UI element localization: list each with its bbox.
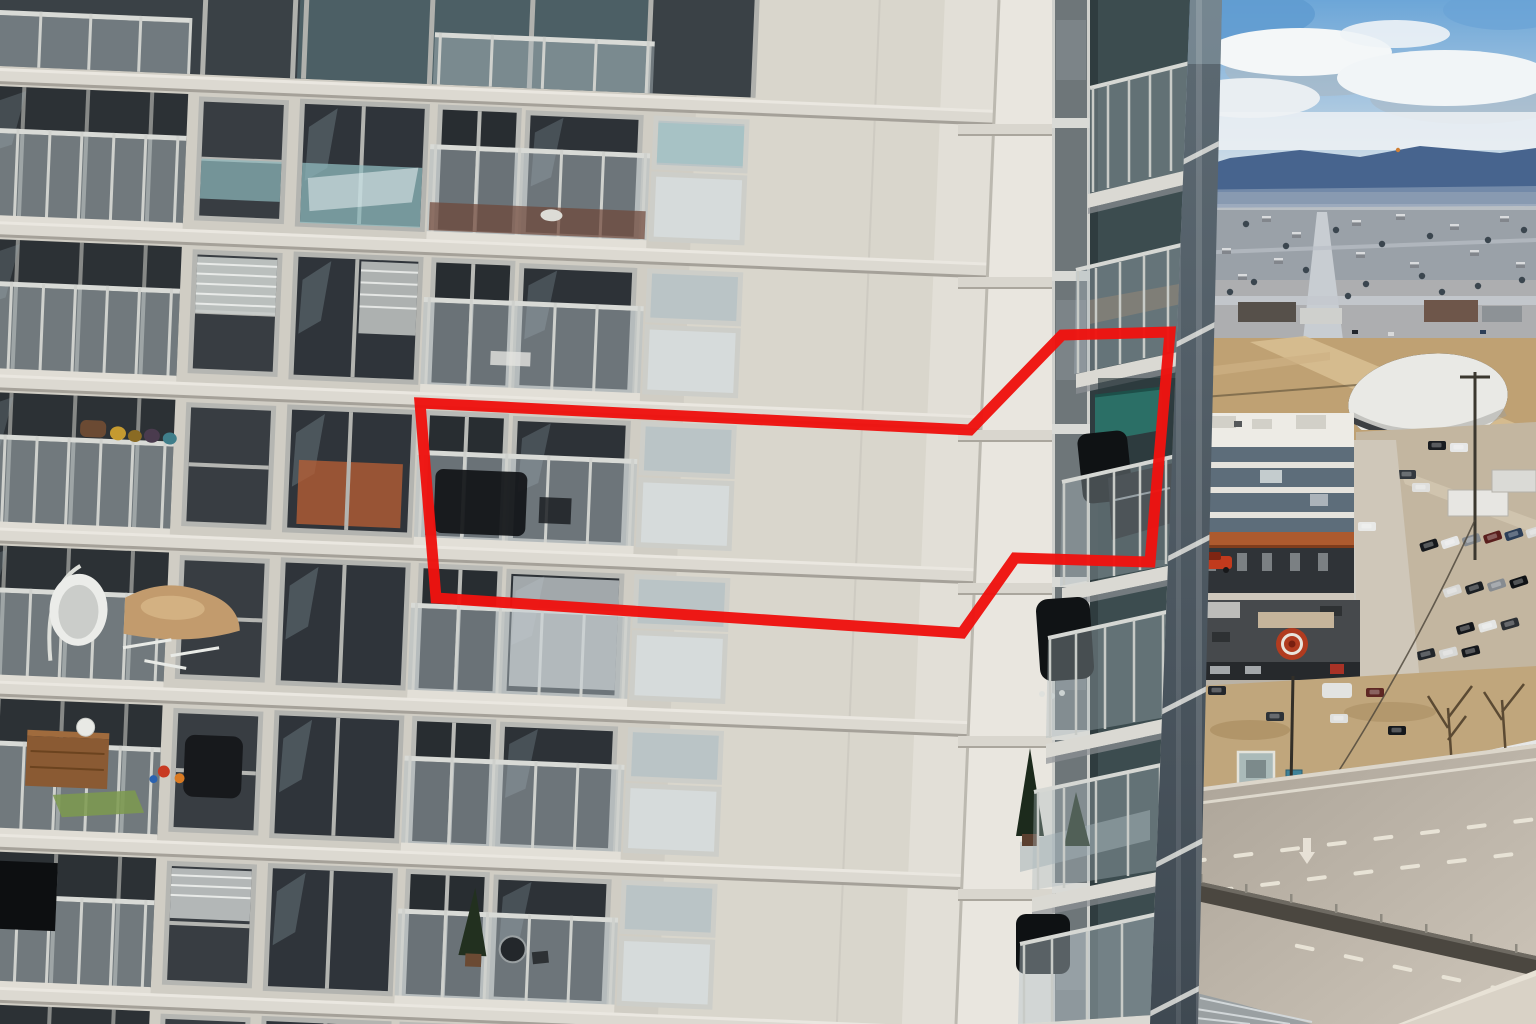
restaurant-building <box>1192 600 1360 686</box>
covered-bbq <box>183 734 244 798</box>
wood-dresser <box>25 730 109 789</box>
white-van <box>1322 683 1352 698</box>
trailer <box>1448 490 1508 516</box>
suburban-area <box>1165 210 1536 340</box>
office-orange-stripe <box>1192 532 1354 547</box>
restaurant-red-logo <box>1276 628 1308 660</box>
building-facade <box>0 0 1008 1024</box>
white-bucket <box>76 718 95 737</box>
sheer-curtains <box>509 576 620 690</box>
balcony-furniture <box>433 469 528 537</box>
commercial-roof <box>1238 302 1296 322</box>
office-building <box>1192 413 1354 601</box>
boulevard-road <box>1165 744 1536 1024</box>
building-tower <box>0 0 1224 1024</box>
open-slider-window <box>0 861 58 932</box>
corner-balcony <box>1088 62 1196 214</box>
aerial-photo <box>0 0 1536 1024</box>
